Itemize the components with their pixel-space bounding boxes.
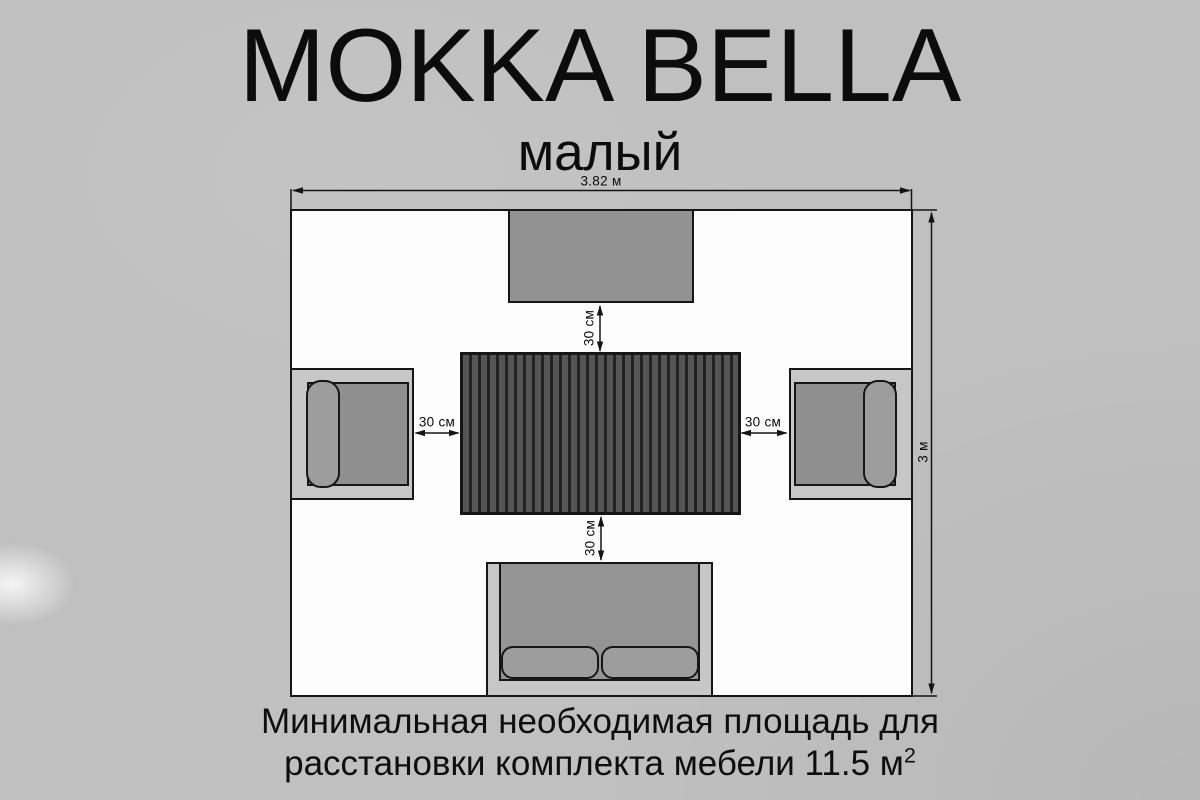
room-height-label: 3 м: [916, 441, 931, 462]
sofa-cushion-left: [501, 646, 599, 679]
page-title: MOKKA BELLA: [0, 14, 1200, 118]
gap-right-label: 30 см: [745, 415, 781, 430]
caption: Минимальная необходимая площадь для расс…: [0, 701, 1200, 785]
gap-bottom-label: 30 см: [583, 520, 598, 556]
caption-line-2: расстановки комплекта мебели 11.5 м2: [0, 743, 1200, 785]
bench-top: [508, 209, 694, 303]
sofa-cushion-right: [601, 646, 699, 679]
room-width-label: 3.82 м: [580, 174, 621, 189]
gap-left-label: 30 см: [419, 415, 455, 430]
gap-top-label: 30 см: [582, 310, 597, 346]
armchair-right: [789, 368, 913, 500]
armchair-right-cushion: [863, 380, 897, 488]
armchair-left: [290, 368, 414, 500]
dim-room-width: [291, 187, 912, 210]
page-subtitle: малый: [0, 126, 1200, 179]
armchair-left-cushion: [306, 380, 340, 488]
slatted-table: [460, 352, 741, 515]
floorplan-diagram: MOKKA BELLA малый: [0, 0, 1200, 800]
caption-superscript: 2: [904, 742, 916, 767]
sofa-bottom: [486, 562, 713, 697]
caption-line-1: Минимальная необходимая площадь для: [0, 701, 1200, 743]
caption-line-2-text: расстановки комплекта мебели 11.5 м: [284, 744, 904, 783]
